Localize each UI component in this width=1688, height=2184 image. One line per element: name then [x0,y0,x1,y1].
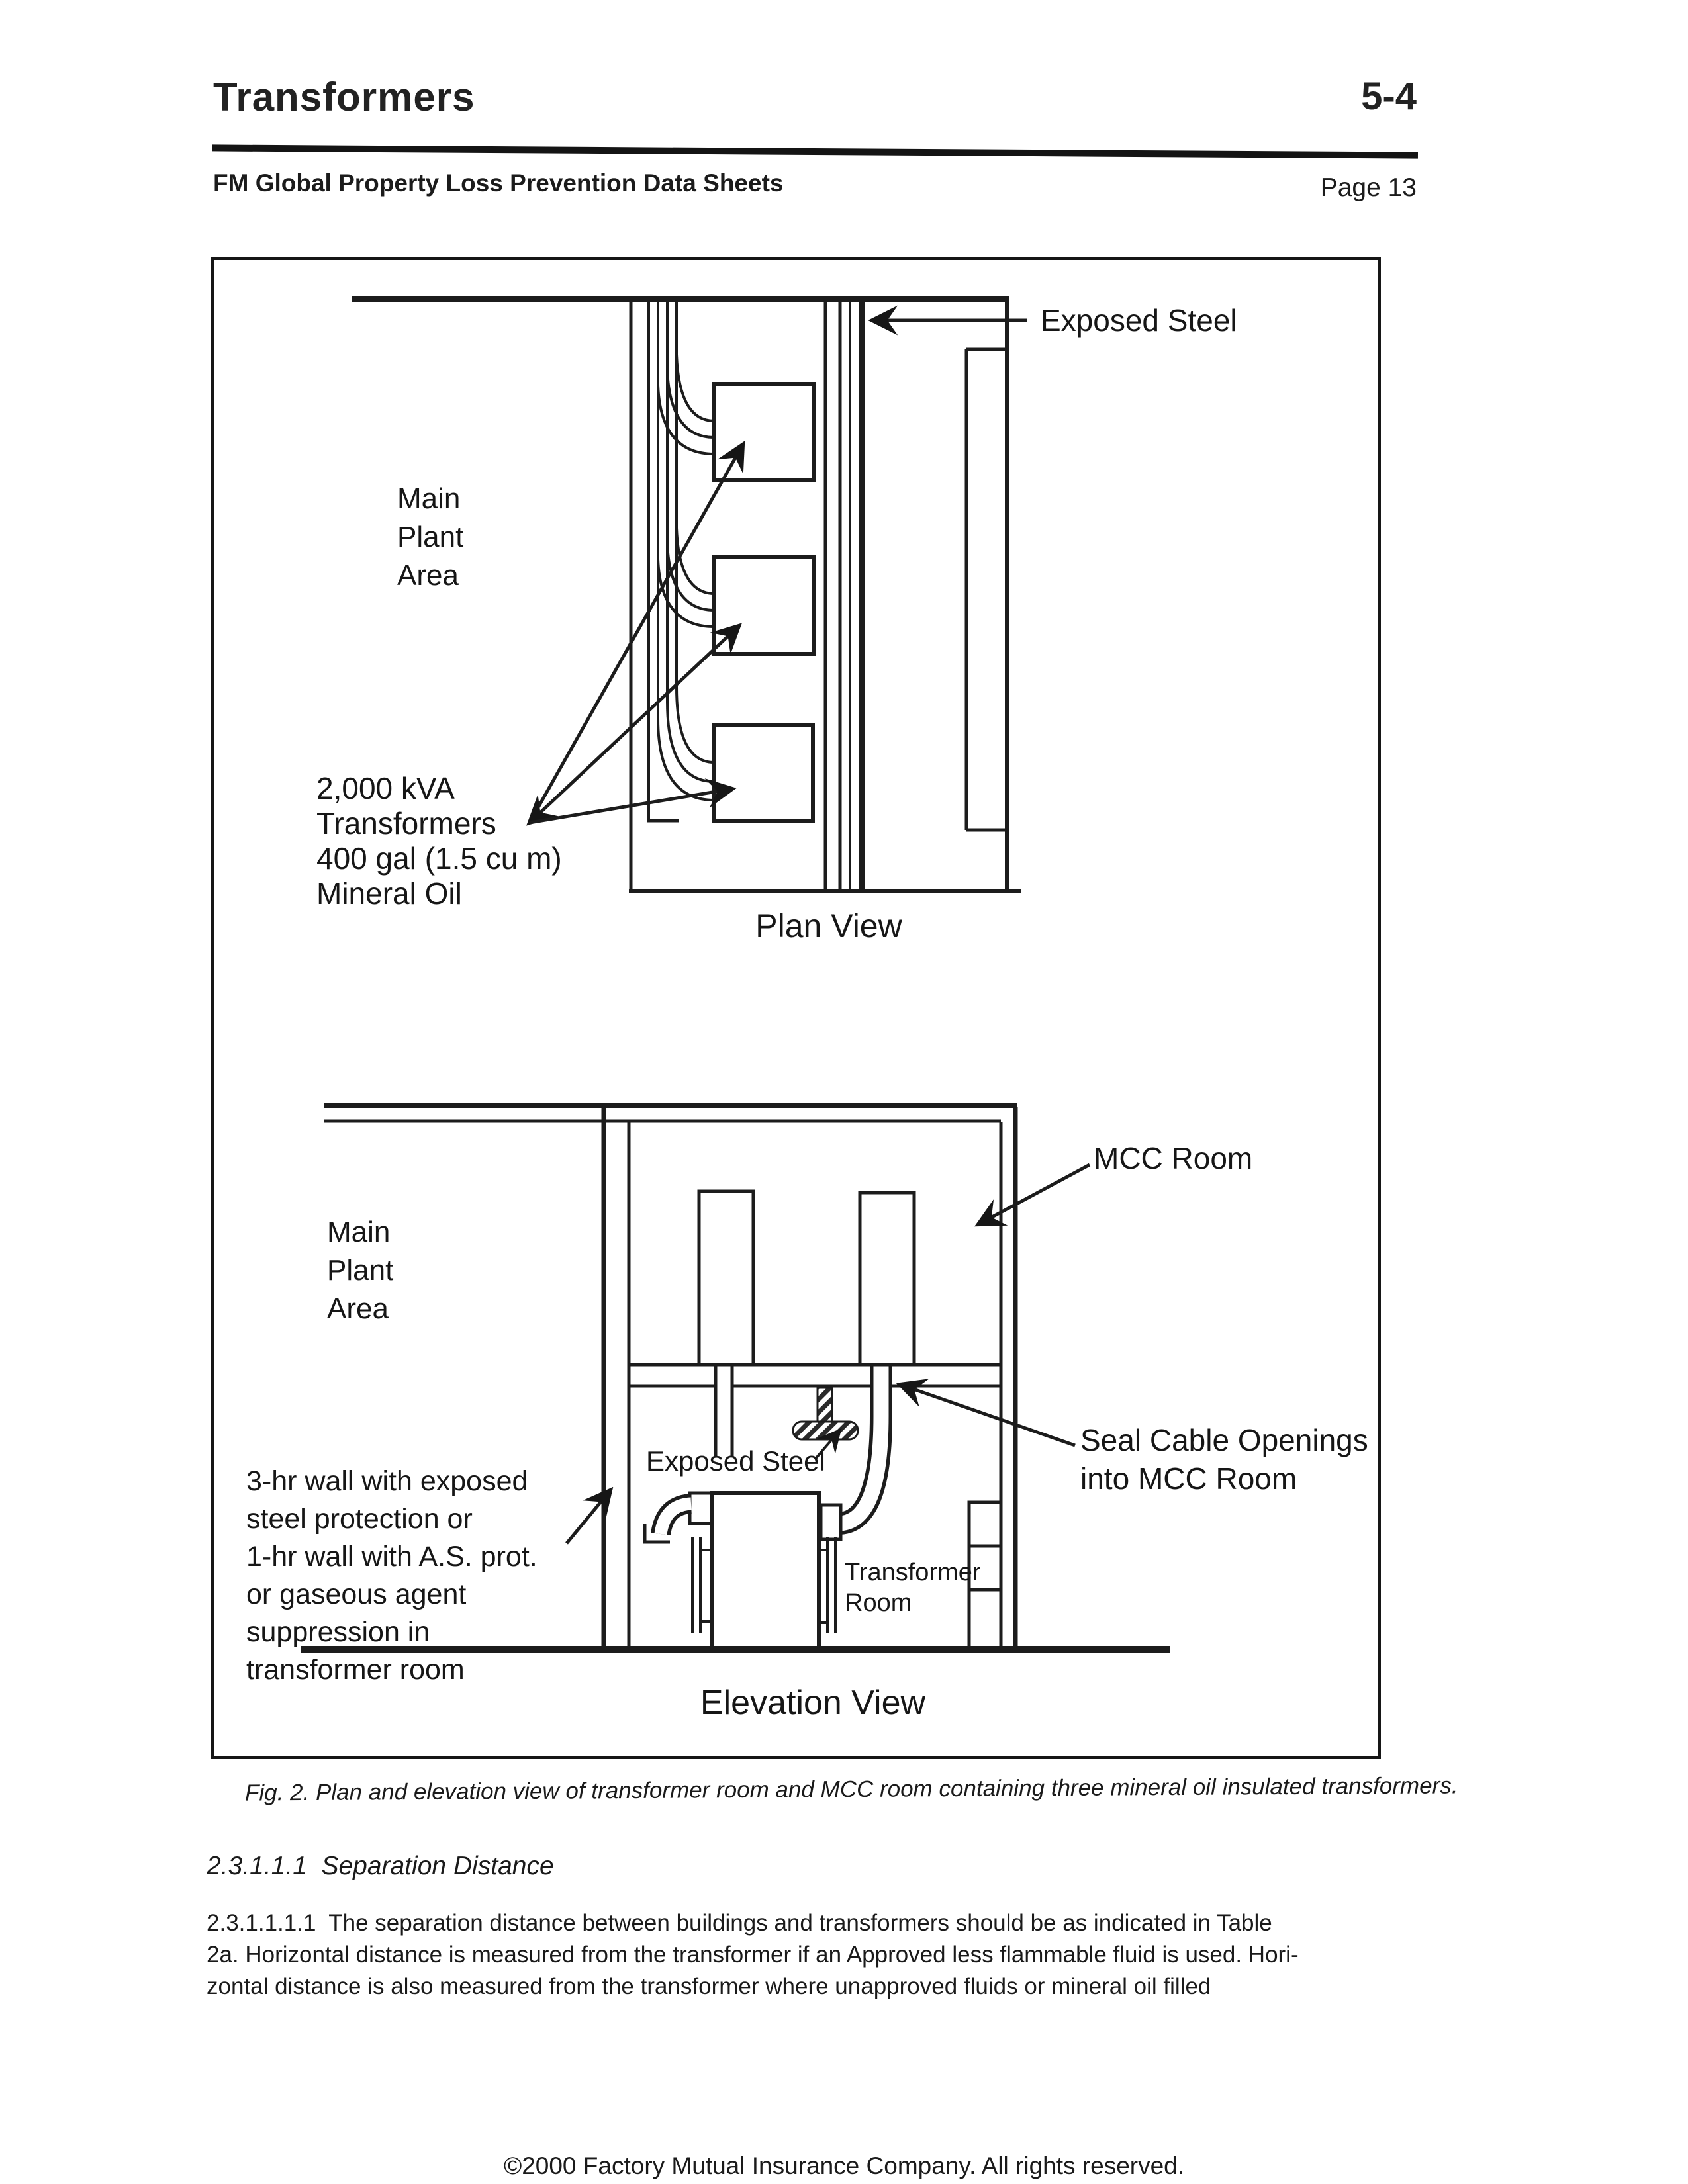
elev-mcc-cabinet-left [699,1191,753,1365]
plan-mcc-cabinet [966,349,1005,830]
elev-transformer-bushing-left [690,1493,712,1524]
svg-text:suppression in: suppression in [246,1616,430,1648]
svg-text:or gaseous agent: or gaseous agent [246,1578,466,1610]
svg-text:transformer room: transformer room [246,1654,465,1686]
plan-transformer-2 [714,557,814,654]
elev-seal-label-line1: Seal Cable Openings [1080,1423,1368,1457]
plan-transformer-label-line3: 400 gal (1.5 cu m) [316,841,562,876]
plan-conduit-run [647,301,714,821]
elev-main-plant-area-line1: Main [327,1216,390,1248]
elev-transformer-room-label-line2: Room [845,1589,912,1617]
elev-mcc-room-arrow [978,1165,1090,1224]
body-paragraph-line2: 2a. Horizontal distance is measured from… [207,1942,1299,1968]
elev-seal-arrow [900,1385,1075,1445]
footer-copyright: ©2000 Factory Mutual Insurance Company. … [0,2152,1688,2180]
plan-transformer-3 [714,725,813,821]
elev-mcc-cabinet-right [860,1193,914,1365]
plan-main-plant-area-line1: Main [397,482,460,515]
plan-exposed-steel-label: Exposed Steel [1041,303,1237,338]
body-paragraph-line3: zontal distance is also measured from th… [207,1974,1211,2000]
elevation-view-title: Elevation View [700,1684,926,1722]
svg-text:steel protection or: steel protection or [246,1503,473,1535]
svg-text:1-hr wall with A.S. prot.: 1-hr wall with A.S. prot. [246,1541,538,1572]
plan-room-wall-double [825,299,840,891]
plan-view-title: Plan View [755,907,902,944]
elev-transformer-room-label-line1: Transformer [845,1559,981,1586]
svg-text:3-hr wall with exposed: 3-hr wall with exposed [246,1465,528,1497]
elev-main-plant-area-line3: Area [327,1293,389,1325]
elev-transformer-bushing-right [821,1505,841,1539]
elev-steel-beam-flange [793,1422,858,1439]
elev-transformer [712,1493,819,1649]
document-page: Transformers 5-4 FM Global Property Loss… [0,0,1688,2184]
elev-main-plant-area-line2: Plant [327,1254,393,1287]
plan-main-plant-area-line3: Area [397,559,459,592]
elev-mcc-room-label: MCC Room [1094,1141,1252,1175]
elev-steel-beam-web [818,1388,832,1422]
plan-transformer-label-line2: Transformers [316,806,496,841]
elev-exposed-steel-label: Exposed Steel [646,1445,825,1477]
plan-transformer-label-line4: Mineral Oil [316,876,462,911]
elev-wall-label: 3-hr wall with exposed steel protection … [246,1465,538,1686]
plan-main-plant-area-line2: Plant [397,521,463,553]
section-heading: 2.3.1.1.1 Separation Distance [207,1852,554,1881]
elev-seal-label-line2: into MCC Room [1080,1461,1297,1496]
body-paragraph-line1: 2.3.1.1.1.1 The separation distance betw… [207,1910,1272,1936]
plan-transformer-callout-arrows [530,445,743,823]
plan-transformer-label-line1: 2,000 kVA [316,771,455,805]
